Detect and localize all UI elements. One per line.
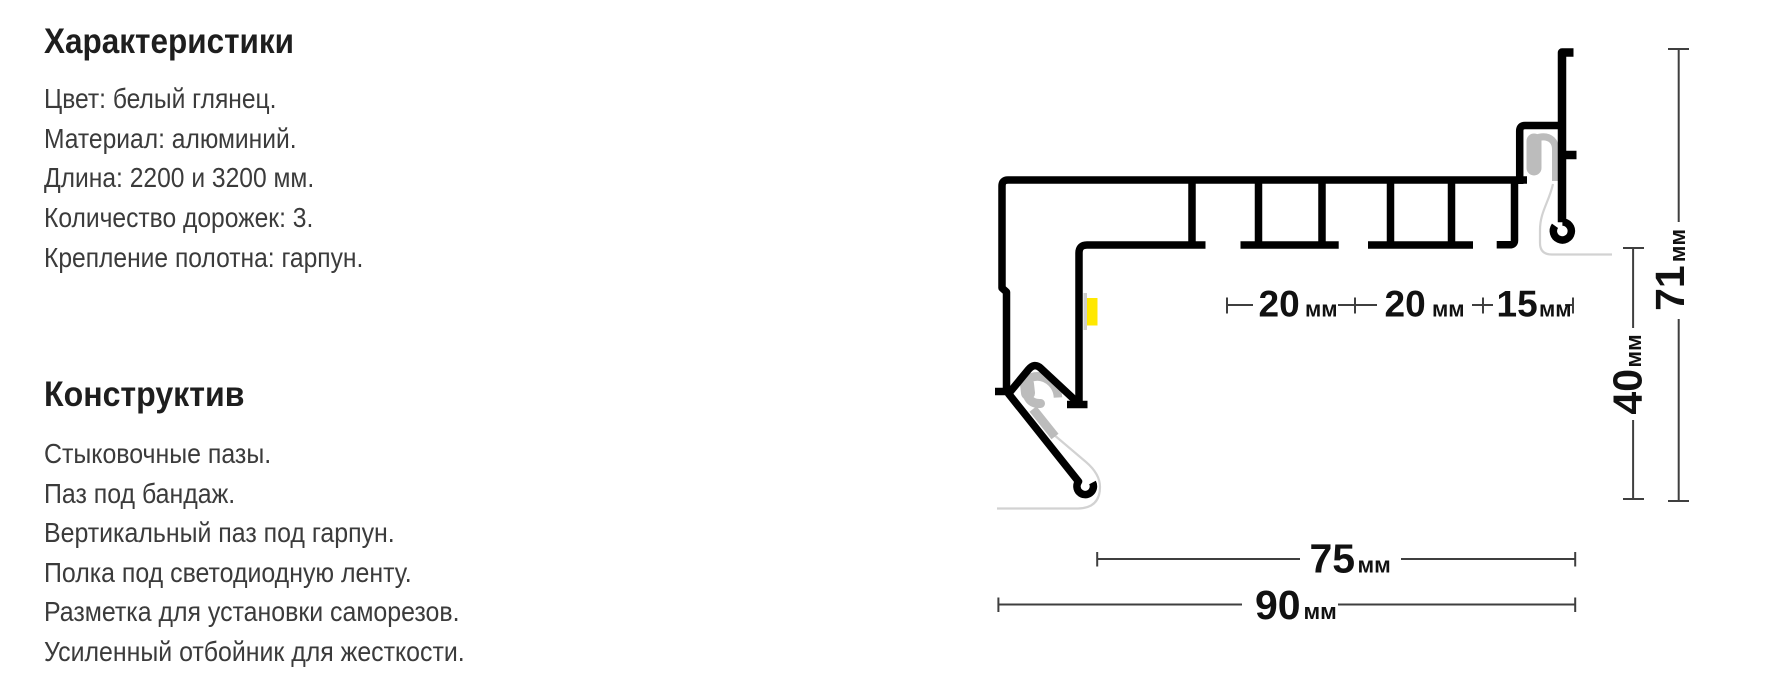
svg-text:15: 15 <box>1497 284 1538 325</box>
svg-text:мм: мм <box>1305 297 1338 322</box>
svg-text:мм: мм <box>1539 297 1572 322</box>
svg-text:75: 75 <box>1310 536 1356 582</box>
svg-text:71: 71 <box>1647 265 1693 311</box>
svg-text:мм: мм <box>1358 553 1391 578</box>
svg-text:20: 20 <box>1385 284 1426 325</box>
svg-text:20: 20 <box>1259 284 1300 325</box>
svg-text:40: 40 <box>1605 369 1651 415</box>
svg-text:мм: мм <box>1621 334 1646 367</box>
svg-text:мм: мм <box>1665 229 1690 262</box>
svg-text:мм: мм <box>1304 599 1337 624</box>
svg-text:мм: мм <box>1432 297 1465 322</box>
svg-text:90: 90 <box>1255 582 1301 628</box>
